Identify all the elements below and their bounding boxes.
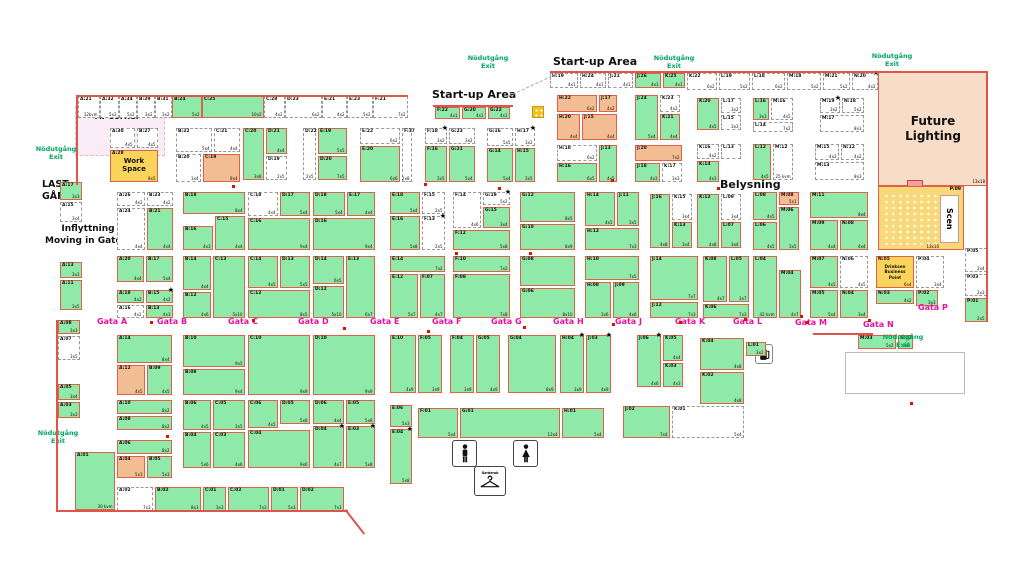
booth-a-06: A:068x2 — [117, 440, 172, 454]
booth-size: 4x5 — [783, 114, 790, 119]
booth-a-05: A:053x4 — [58, 384, 80, 400]
emergency-exit-label-1: Nödutgång Exit — [32, 430, 84, 446]
star-icon: ★ — [835, 94, 841, 102]
booth-k-17: K:173x3 — [662, 163, 682, 182]
booth-id: K:03 — [665, 364, 677, 369]
pillar-dot — [800, 315, 803, 318]
booth-g-06: G:068x10 — [520, 288, 575, 318]
boundary-line — [433, 105, 513, 107]
booth-size: 5x2 — [500, 199, 507, 204]
booth-b-20: B:203x4 — [176, 154, 201, 182]
booth-size: 4x5 — [767, 244, 774, 249]
booth-id: B:13 — [148, 306, 160, 311]
business-point-size: 6x4 — [904, 282, 911, 287]
booth-size: 4x2 — [904, 298, 911, 303]
booth-e-13: E:136x7 — [346, 256, 375, 318]
booth-size: 4x2 — [275, 112, 282, 117]
booth-size: 5x3 — [135, 472, 142, 477]
booth-a-26: A:264x2 — [117, 192, 145, 206]
booth-id: E:21 — [324, 97, 335, 102]
pillar-dot — [427, 330, 430, 333]
booth-a-24: A:244x4 — [117, 208, 145, 250]
work-space-size: 8x5 — [148, 176, 155, 181]
booth-id: E:12 — [392, 275, 403, 280]
booth-id: F:13 — [424, 217, 435, 222]
booth-size: 6x2 — [775, 84, 782, 89]
booth-id: A:04 — [119, 457, 131, 462]
booth-id: B:02 — [157, 488, 169, 493]
booth-size: 4x4 — [135, 244, 142, 249]
booth-d-10: D:109x9 — [313, 335, 375, 395]
booth-c-21: C:214x4 — [214, 128, 240, 152]
booth-id: K:06 — [705, 305, 717, 310]
cloakroom-sign: Garderob — [474, 466, 506, 496]
booth-size: 4x5 — [148, 142, 155, 147]
booth-id: N:04 — [842, 291, 854, 296]
booth-e-21: E:214x2 — [322, 96, 347, 118]
booth-size: 4x2 — [134, 297, 141, 302]
booth-size: 4x2 — [670, 106, 677, 111]
booth-c-16: C:169x4 — [248, 218, 310, 250]
booth-size: 9x5 — [235, 361, 242, 366]
street-label-gata-f: Gata F — [432, 317, 461, 326]
startup-area-label-right: Start-up Area — [553, 55, 637, 68]
booth-h-12: H:127x3 — [585, 228, 639, 250]
booth-id: M:04 — [781, 271, 794, 276]
street-label-gata-a: Gata A — [97, 317, 127, 326]
booth-d-12: D:125x10 — [313, 286, 344, 318]
booth-l-16: L:163x3 — [753, 98, 769, 120]
booth-j-12: J:127x3 — [650, 302, 698, 318]
booth-m-05: M:055x4 — [810, 290, 838, 318]
booth-id: B:29 — [139, 97, 151, 102]
booth-size: 4x5 — [201, 424, 208, 429]
hanger-icon — [479, 475, 501, 490]
booth-size: 3x3 — [70, 412, 77, 417]
booth-id: F:21 — [375, 97, 386, 102]
booth-id: B:21 — [149, 209, 161, 214]
booth-id: M:15 — [817, 145, 830, 150]
booth-size: 6x5 — [587, 176, 594, 181]
booth-size: 3x2 — [145, 112, 152, 117]
booth-id: K:15 — [674, 195, 686, 200]
booth-id: F:14 — [455, 193, 466, 198]
booth-id: E:16 — [392, 217, 403, 222]
restroom-men-sign — [452, 440, 477, 467]
booth-size: 5x4 — [828, 312, 835, 317]
booth-id: C:28 — [266, 97, 277, 102]
booth-size: 3x4 — [500, 222, 507, 227]
service-point-icon — [532, 106, 544, 118]
booth-b-22: B:225x4 — [176, 128, 212, 152]
booth-m-21: M:215x2 — [823, 73, 850, 90]
booth-b-14: B:144x4 — [183, 256, 211, 290]
business-point-booth: N:05 Drinksen Business Point 6x4 — [876, 256, 914, 288]
booth-size: 3x3 — [70, 328, 77, 333]
booth-size: 4x4 — [235, 244, 242, 249]
booth-g-16: G:165x5 — [487, 128, 513, 146]
boundary-line — [813, 333, 873, 335]
booth-f-07: F:074x7 — [420, 274, 445, 318]
pillar-dot — [523, 326, 526, 329]
booth-l-07: L:073x4 — [721, 222, 741, 248]
pillar-dot — [910, 402, 913, 405]
booth-size: 4x5 — [268, 282, 275, 287]
booth-id: L:07 — [723, 223, 734, 228]
booth-id: D:18 — [315, 193, 327, 198]
booth-j-18: J:184x3 — [635, 163, 660, 182]
booth-m-19: M:193x2★ — [820, 98, 840, 113]
booth-size: 5x5 — [337, 148, 344, 153]
booth-b-08: B:089x4 — [183, 369, 245, 395]
booth-id: C:19 — [205, 155, 216, 160]
booth-c-19: C:198x4 — [203, 154, 240, 182]
booth-c-06: C:064x5 — [248, 400, 278, 428]
pillar-dot — [150, 321, 153, 324]
booth-l-08: L:084x5 — [753, 192, 777, 220]
booth-size: 4x4 — [268, 210, 275, 215]
booth-id: M:05 — [812, 291, 825, 296]
booth-id: K:13 — [674, 223, 686, 228]
booth-id: H:04 — [562, 336, 574, 341]
star-icon: ★ — [606, 331, 612, 339]
booth-l-13: L:13 — [721, 144, 741, 159]
booth-size: 3x4 — [682, 214, 689, 219]
booth-size: 3x8 — [254, 174, 261, 179]
booth-size: 4x6 — [201, 312, 208, 317]
booth-g-04: G:048x9 — [508, 335, 556, 393]
booth-size: 5x2 — [740, 84, 747, 89]
booth-id: J:17 — [601, 96, 611, 101]
booth-id: A:05 — [60, 385, 72, 390]
booth-size: 6x2 — [312, 112, 319, 117]
booth-b-05: B:055x3 — [147, 456, 172, 478]
booth-f-04: F:043x9 — [450, 335, 474, 393]
booth-d-18: D:185x4 — [313, 192, 345, 216]
booth-size: 4x1 — [623, 82, 630, 87]
booth-g-20: G:204x1 — [462, 107, 486, 119]
booth-id: E:04 — [392, 430, 403, 435]
booth-g-21: G:215x4 — [449, 146, 475, 182]
booth-size: 3x2 — [437, 138, 444, 143]
booth-size: 4x9 — [601, 387, 608, 392]
booth-d-22: D:222x5 — [303, 128, 316, 180]
booth-id: H:12 — [587, 229, 599, 234]
booth-b-17: B:175x4 — [146, 256, 173, 282]
booth-d-14: D:146x5 — [313, 256, 344, 284]
pillar-dot — [868, 319, 871, 322]
booth-e-19: E:195x5 — [318, 128, 347, 154]
booth-id: N:18 — [844, 99, 856, 104]
booth-size: 7x5 — [629, 274, 636, 279]
booth-a-04: A:045x3 — [117, 456, 145, 478]
booth-id: D:20 — [320, 157, 332, 162]
emergency-exit-label-5: Nödutgång Exit — [877, 334, 929, 350]
booth-size: 4x8 — [709, 242, 716, 247]
booth-l-01: L:013x2 — [746, 342, 766, 356]
booth-id: M:16 — [773, 99, 786, 104]
booth-b-23: B:234x2 — [147, 192, 173, 206]
street-label-gata-b: Gata B — [157, 317, 187, 326]
booth-id: A:10 — [119, 401, 131, 406]
booth-size: 7x3 — [629, 244, 636, 249]
booth-size: 3x2 — [465, 138, 472, 143]
booth-size: 3x5 — [235, 424, 242, 429]
booth-size: 4x4 — [570, 134, 577, 139]
booth-id: N:06 — [842, 257, 854, 262]
booth-id: A:34 — [121, 97, 133, 102]
booth-h-18: H:186x2 — [557, 145, 597, 161]
booth-l-05: L:053x7 — [729, 256, 749, 302]
booth-n-20: N:204x2★ — [852, 73, 878, 90]
boundary-line — [78, 95, 408, 97]
booth-f-21: F:217x2 — [373, 96, 408, 118]
booth-id: A:26 — [119, 193, 131, 198]
booth-id: G:21 — [451, 147, 463, 152]
booth-p-05: P:052x4 — [965, 248, 987, 272]
booth-size: 5x4 — [410, 208, 417, 213]
booth-id: M:13 — [817, 163, 830, 168]
booth-d-19: D:192x5 — [266, 156, 287, 180]
booth-id: P:01 — [967, 299, 978, 304]
pillar-dot — [744, 318, 747, 321]
booth-d-02: D:027x3 — [300, 487, 344, 511]
pillar-dot — [679, 321, 682, 324]
booth-id: C:01 — [205, 488, 216, 493]
booth-size: 3x4 — [731, 214, 738, 219]
booth-c-05: C:053x5 — [213, 400, 245, 430]
booth-b-15: B:154x2★ — [146, 290, 173, 303]
booth-k-06: K:067x3 — [703, 304, 749, 318]
booth-e-05: E:055x8 — [346, 400, 375, 424]
booth-id: B:05 — [149, 457, 161, 462]
booth-id: J:02 — [625, 407, 635, 412]
booth-id: F:04 — [452, 336, 463, 341]
booth-id: M:19 — [822, 99, 835, 104]
booth-size: 5x8 — [300, 418, 307, 423]
scen-size: 13x10 — [926, 244, 939, 249]
booth-size: 3x3 — [72, 272, 79, 277]
booth-id: D:04 — [315, 427, 327, 432]
booth-size: 5x7 — [408, 312, 415, 317]
booth-size: 5x5 — [503, 140, 510, 145]
booth-id: B:23 — [149, 193, 161, 198]
booth-size: 5x4 — [465, 176, 472, 181]
booth-size: 4x1 — [568, 82, 575, 87]
booth-l-17: L:173x2 — [721, 98, 741, 113]
pillar-dot — [252, 319, 255, 322]
future-lighting-label: Future Lighting — [905, 114, 961, 144]
booth-id: F:07 — [422, 275, 433, 280]
booth-id: A:01 — [77, 453, 89, 458]
booth-b-31: B:313x2 — [155, 96, 172, 118]
booth-size: 4x4 — [828, 244, 835, 249]
booth-size: 4x1 — [450, 113, 457, 118]
booth-k-08: K:084x7 — [703, 256, 727, 302]
booth-size: 5x8 — [365, 462, 372, 467]
booth-k-05: K:054x4 — [663, 335, 683, 361]
booth-size: 8x2 — [162, 424, 169, 429]
booth-size: 4x2 — [163, 297, 170, 302]
booth-g-10: G:108x9 — [520, 224, 575, 250]
booth-size: 5x4 — [163, 276, 170, 281]
booth-size: 4x9 — [406, 387, 413, 392]
booth-size: 3x9 — [574, 387, 581, 392]
street-label-gata-h: Gata H — [553, 317, 584, 326]
booth-a-10: A:108x2 — [117, 400, 172, 414]
booth-id: L:09 — [723, 195, 734, 200]
booth-f-12: F:125x8 — [453, 230, 510, 250]
booth-size: 3x4 — [682, 242, 689, 247]
booth-size: 3x5 — [72, 304, 79, 309]
booth-size: 4x5 — [709, 124, 716, 129]
booth-h-14: H:144x5 — [585, 192, 615, 226]
booth-j-15: J:154x4 — [582, 114, 617, 140]
booth-l-04: L:0442 kvm — [753, 256, 777, 318]
booth-id: N:03 — [878, 291, 890, 296]
star-icon: ★ — [339, 422, 345, 430]
floorplan-map: AI Corner A:28 Work Space 8x5 Future Lig… — [0, 0, 1024, 576]
booth-j-02: J:027x4 — [623, 406, 670, 438]
booth-size: 6x2 — [587, 155, 594, 160]
booth-size: 10x2 — [251, 112, 261, 117]
booth-k-02: K:024x8 — [700, 372, 744, 404]
boundary-line — [57, 320, 59, 512]
booth-size: 3x2 — [731, 107, 738, 112]
pillar-dot — [343, 327, 346, 330]
booth-id: A:16 — [119, 306, 131, 311]
booth-id: K:12 — [699, 195, 711, 200]
booth-g-22: G:224x1 — [488, 107, 510, 119]
booth-id: D:02 — [302, 488, 314, 493]
booth-c-04: C:049x6 — [248, 430, 310, 468]
future-lighting-area: Future Lighting 13x18 — [878, 72, 988, 186]
booth-id: C:02 — [230, 488, 241, 493]
booth-id: B:04 — [185, 433, 197, 438]
booth-id: L:04 — [755, 257, 766, 262]
booth-c-10: C:109x9 — [248, 335, 310, 395]
booth-size: 4x6 — [235, 462, 242, 467]
booth-id: L:05 — [731, 257, 742, 262]
street-label-gata-m: Gata M — [795, 318, 827, 327]
booth-id: F:15 — [424, 193, 435, 198]
booth-size: 3x7 — [739, 296, 746, 301]
restroom-women-sign — [513, 440, 538, 467]
booth-id: D:10 — [315, 336, 327, 341]
booth-size: 9x9 — [300, 389, 307, 394]
booth-id: E:19 — [320, 129, 331, 134]
booth-size: 4x4 — [277, 148, 284, 153]
booth-id: E:05 — [348, 401, 359, 406]
booth-a-11: A:113x5 — [60, 280, 82, 310]
booth-id: D:06 — [315, 401, 327, 406]
booth-id: B:24 — [174, 97, 186, 102]
booth-size: 5x8 — [500, 244, 507, 249]
booth-size: 3x3 — [731, 124, 738, 129]
booth-e-23: E:235x2 — [347, 96, 373, 118]
booth-id: B:18 — [185, 193, 197, 198]
booth-size: 30 kvm — [98, 504, 113, 509]
booth-l-09: L:093x4 — [721, 194, 741, 220]
booth-id: L:15 — [723, 116, 734, 121]
booth-size: 4x6 — [471, 222, 478, 227]
booth-size: 3x4 — [191, 176, 198, 181]
booth-id: P:03 — [967, 275, 978, 280]
booth-k-21: K:214x4 — [660, 114, 680, 140]
booth-f-08: F:087x8 — [453, 274, 510, 318]
booth-id: G:10 — [522, 225, 534, 230]
booth-h-08: H:083x6 — [585, 282, 611, 318]
booth-size: 4x3 — [203, 244, 210, 249]
booth-j-20: J:207x2 — [635, 145, 682, 161]
booth-id: E:13 — [348, 257, 359, 262]
booth-size: 4x5 — [125, 142, 132, 147]
booth-p-03: P:032x3 — [965, 274, 987, 296]
booth-size: 2x5 — [277, 174, 284, 179]
booth-id: N:12 — [843, 145, 855, 150]
booth-size: 4x4 — [673, 355, 680, 360]
booth-size: 5x4 — [734, 432, 741, 437]
booth-j-06: J:064x6★ — [637, 335, 661, 387]
booth-id: A:03 — [60, 403, 72, 408]
booth-a-17: A:173x3 — [60, 182, 82, 200]
booth-d-01: D:015x3 — [271, 487, 298, 511]
booth-b-06: B:064x5 — [183, 400, 211, 430]
booth-size: 5x2 — [192, 112, 199, 117]
booth-d-13: D:135x5 — [280, 256, 310, 288]
booth-id: F:12 — [455, 231, 466, 236]
booth-size: 8x9 — [565, 244, 572, 249]
booth-d-05: D:055x8 — [280, 400, 310, 424]
booth-id: L:08 — [755, 193, 766, 198]
booth-size: 3x4 — [70, 394, 77, 399]
booth-l-12: L:124x5 — [753, 144, 771, 180]
booth-size: 4x5 — [767, 214, 774, 219]
booth-id: C:20 — [245, 129, 256, 134]
booth-a-08: A:088x2 — [117, 416, 172, 430]
booth-id: B:27 — [139, 129, 151, 134]
booth-d-06: D:064x4 — [313, 400, 344, 424]
booth-size: 2x5 — [306, 174, 313, 179]
booth-size: 5x2 — [109, 112, 116, 117]
boundary-line — [987, 71, 989, 322]
booth-e-16: E:165x8 — [390, 216, 420, 250]
booth-id: G:15 — [485, 208, 497, 213]
booth-id: A:24 — [119, 209, 131, 214]
booth-size: 25 kvm — [776, 174, 791, 179]
booth-size: 4x8 — [660, 242, 667, 247]
booth-id: J:18 — [637, 164, 647, 169]
booth-id: K:22 — [689, 74, 701, 79]
booth-m-09: M:094x4 — [810, 220, 838, 250]
booth-k-13: K:133x4 — [672, 222, 692, 248]
street-label-gata-l: Gata L — [733, 317, 762, 326]
boundary-line — [550, 71, 988, 73]
booth-id: A:21 — [80, 97, 92, 102]
booth-f-15: F:152x5 — [422, 192, 445, 214]
pillar-dot — [498, 187, 501, 190]
booth-id: E:17 — [349, 193, 360, 198]
booth-id: A:08 — [60, 321, 72, 326]
boundary-line — [77, 95, 79, 185]
booth-size: 4x5 — [268, 422, 275, 427]
booth-size: 3x4 — [934, 282, 941, 287]
booth-size: 4x6 — [651, 381, 658, 386]
booth-id: H:08 — [587, 283, 599, 288]
booth-id: K:17 — [664, 164, 676, 169]
booth-g-14: G:145x4 — [487, 148, 513, 182]
booth-id: D:16 — [315, 219, 327, 224]
